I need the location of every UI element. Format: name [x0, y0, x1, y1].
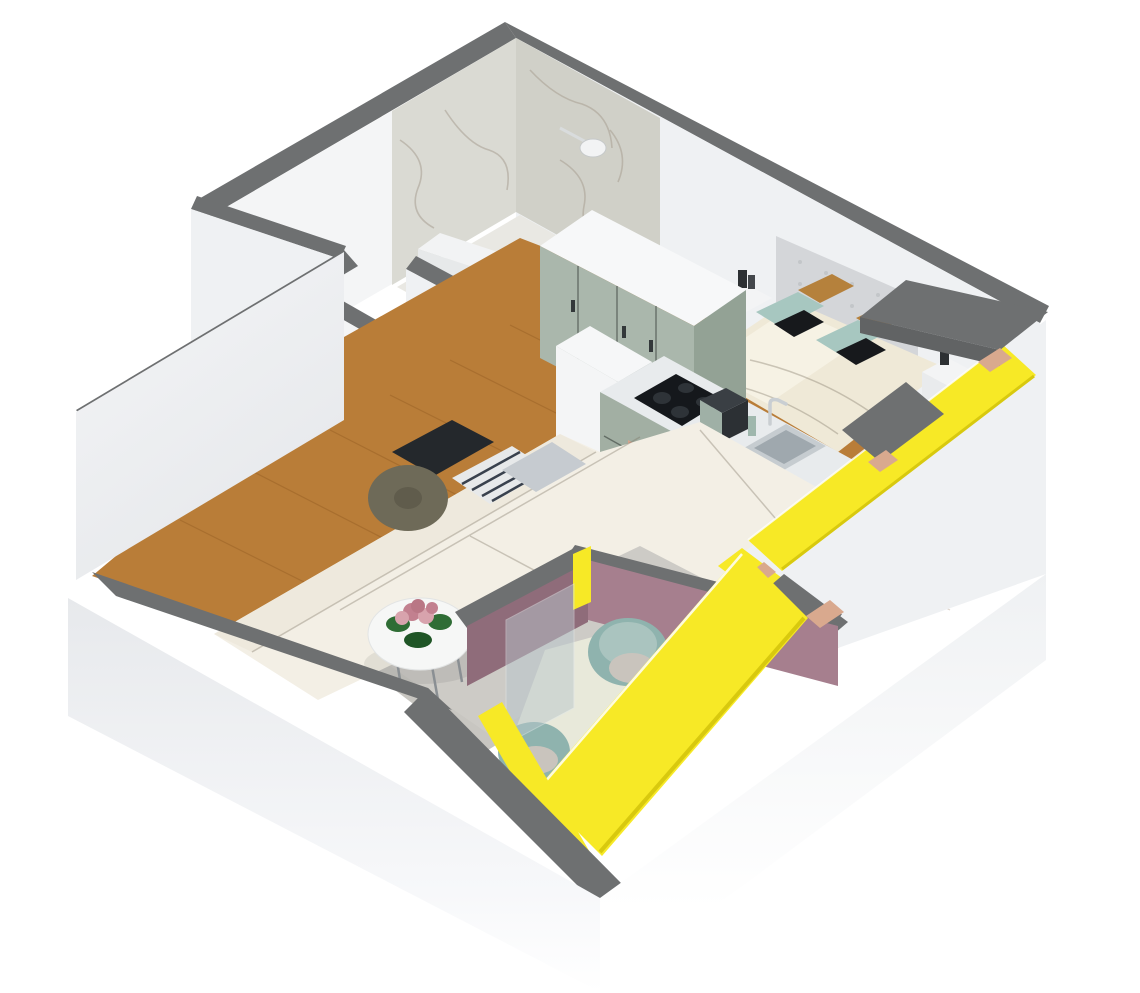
- hob-burner: [671, 406, 689, 418]
- hob-burner: [678, 383, 694, 393]
- wardrobe-handle: [571, 300, 575, 312]
- floorplan-render: [0, 0, 1140, 993]
- balcony-jamb-yellow: [573, 546, 591, 610]
- nightstand-left-bottle: [738, 270, 747, 288]
- nightstand-left-bottle2: [748, 275, 755, 289]
- wardrobe-handle: [649, 340, 653, 352]
- sofa-cushion-olive-button: [394, 487, 422, 509]
- wardrobe-handle: [622, 326, 626, 338]
- kitchen-bottle: [748, 416, 756, 436]
- hob-burner: [653, 392, 671, 404]
- apartment-3d-svg: [0, 0, 1140, 993]
- shower-head: [580, 139, 606, 157]
